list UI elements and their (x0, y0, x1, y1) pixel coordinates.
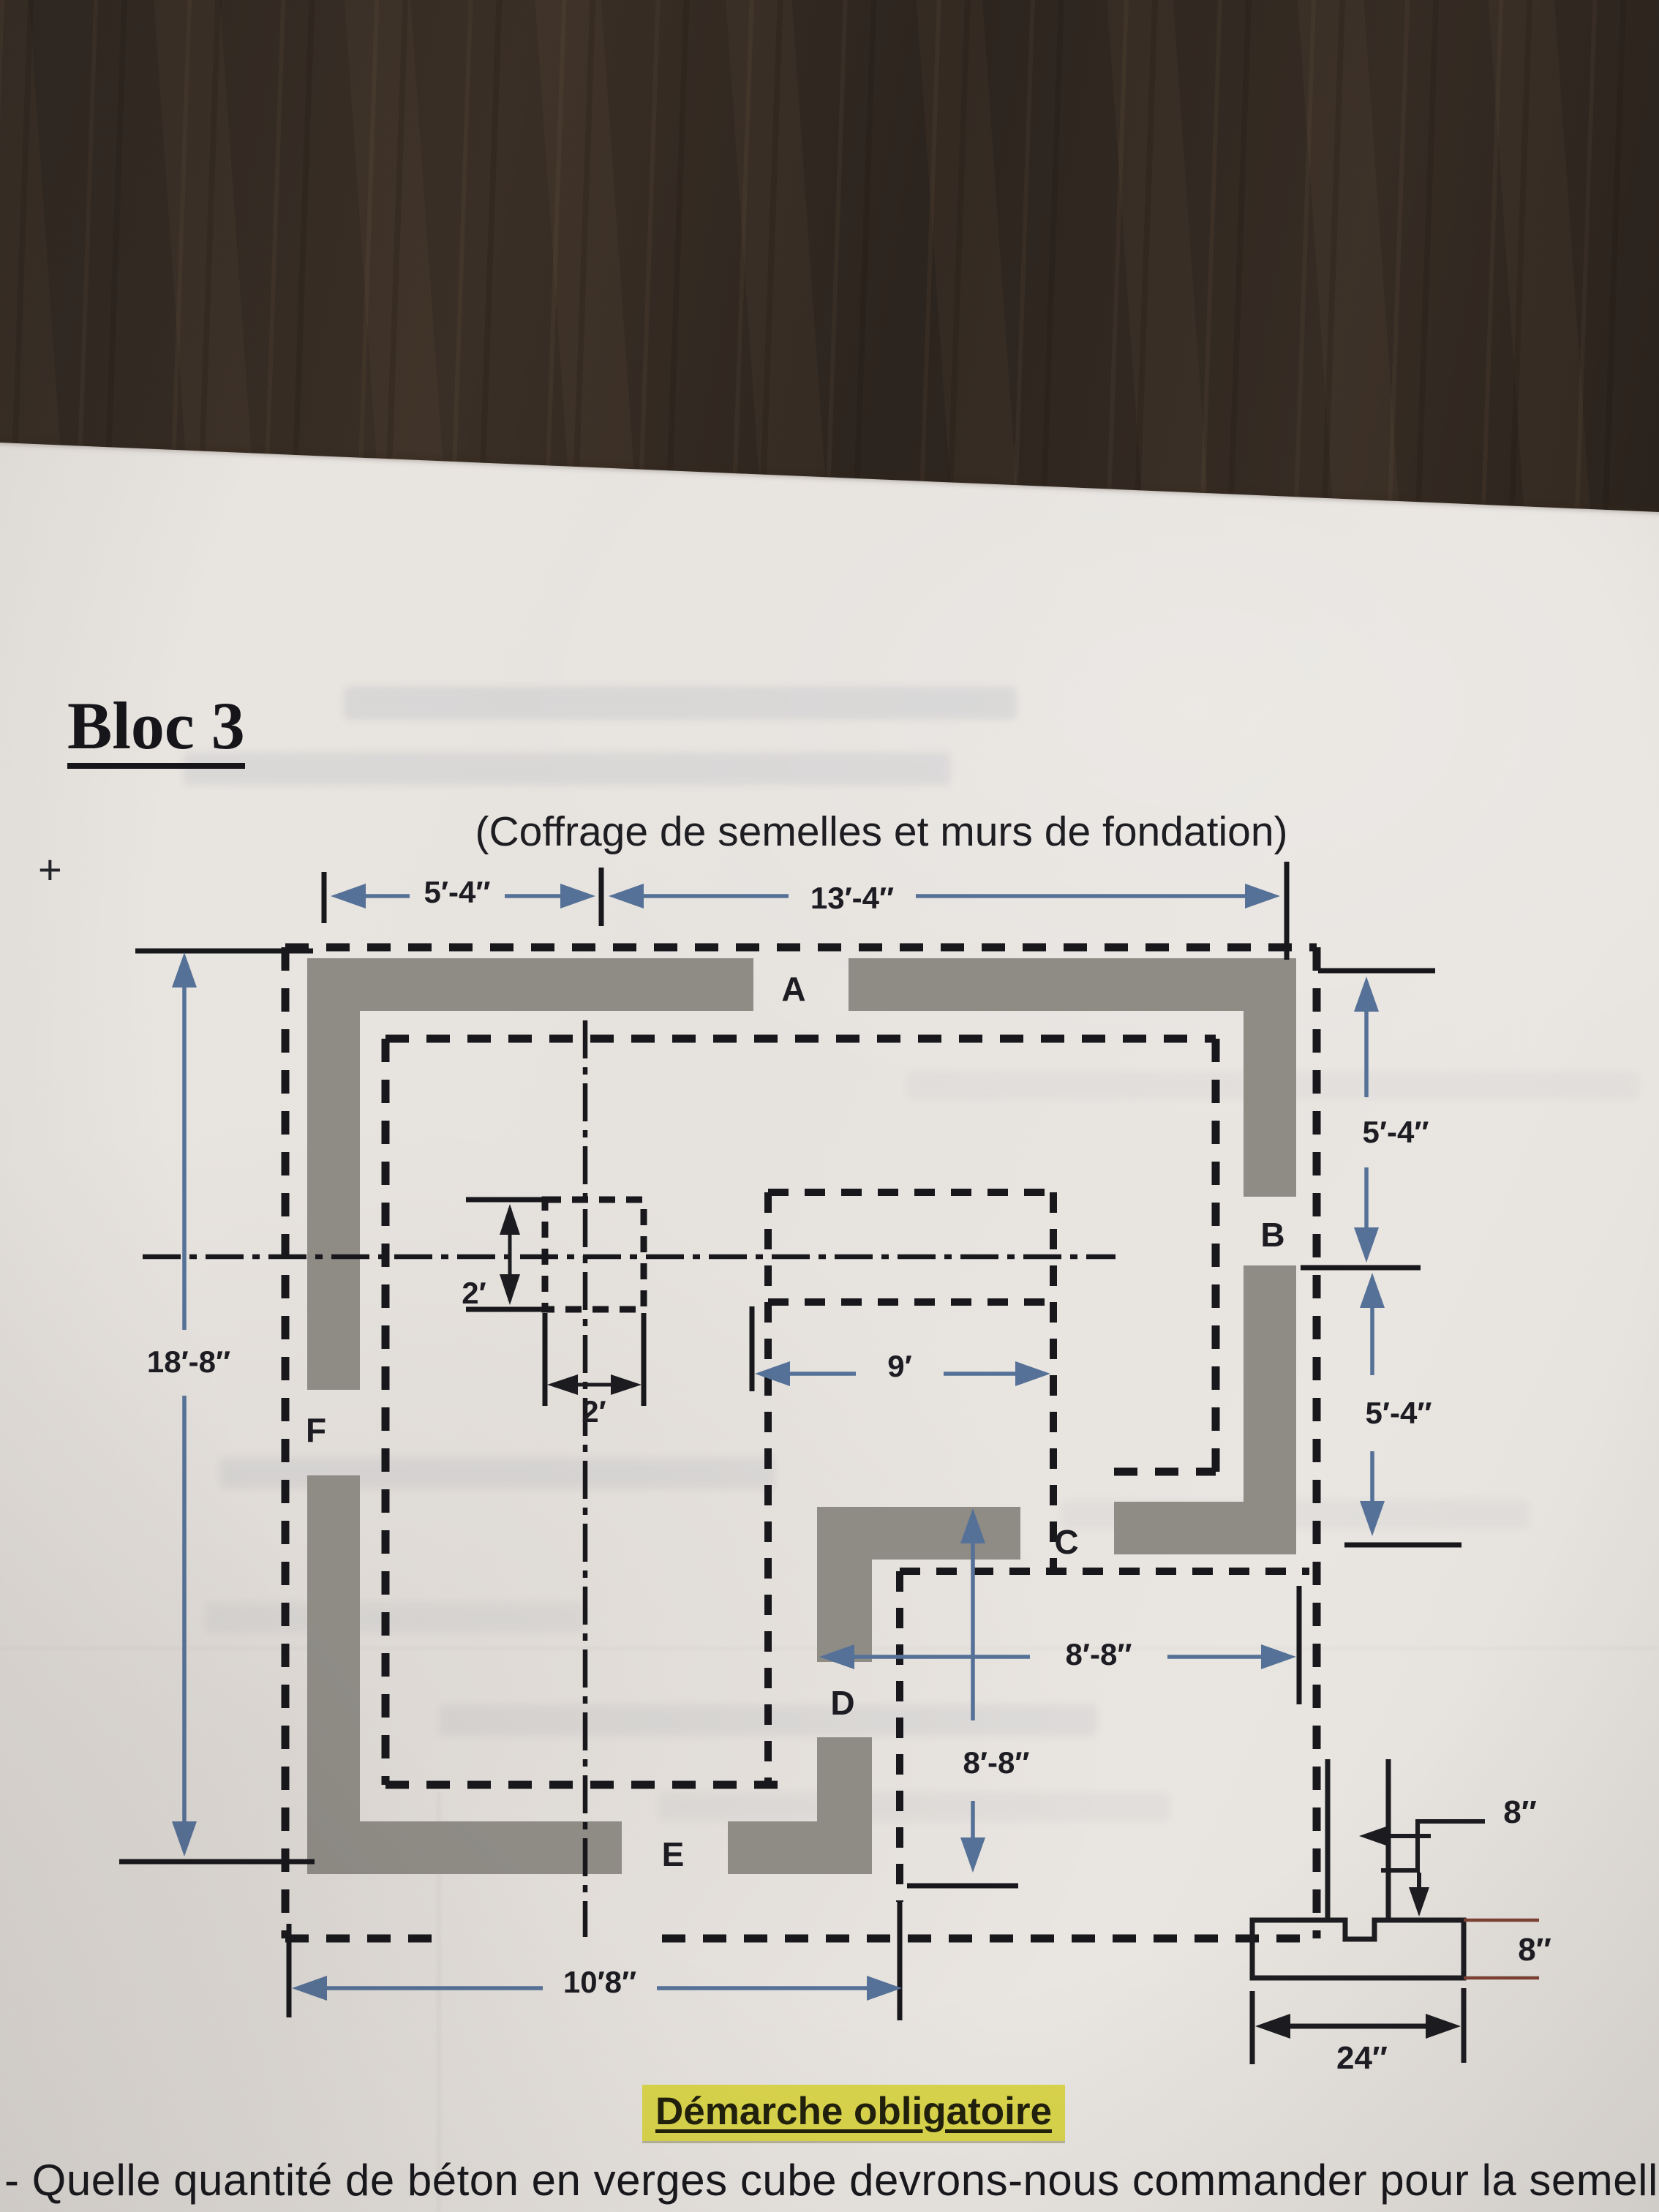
photographed-worksheet: Bloc 3 (Coffrage de semelles et murs de … (0, 0, 1659, 2212)
footing-dashed-outlines (285, 947, 1317, 1938)
dim-right-lower: 5′-4″ (1366, 1396, 1432, 1431)
section-wall-thickness-label: 8″ (1503, 1794, 1537, 1831)
wall-top-right (849, 958, 1296, 1011)
dim-pier-height: 2′ (462, 1276, 486, 1311)
dim-pier-width: 2′ (582, 1394, 606, 1429)
dim-right-upper: 5′-4″ (1363, 1115, 1429, 1150)
opening-label-b: B (1260, 1215, 1284, 1254)
opening-label-d: D (830, 1683, 854, 1723)
wall-right-leg (1114, 1502, 1244, 1554)
opening-label-f: F (306, 1410, 326, 1450)
pier-dimension-arrowheads (500, 1204, 642, 1395)
dim-patio-width: 8′-8″ (1066, 1637, 1132, 1672)
foundation-plan-drawing (0, 0, 1659, 2212)
wall-d-lower (817, 1737, 872, 1821)
wall-top-left (307, 958, 753, 1011)
dim-patio-height: 8′-8″ (963, 1745, 1030, 1780)
dim-top-right: 13′-4″ (810, 881, 894, 916)
section-arrowheads (1255, 1826, 1461, 2039)
dim-interior-width: 9′ (887, 1349, 911, 1384)
foundation-walls (307, 958, 1296, 1874)
wall-left-lower (307, 1475, 360, 1874)
wall-bottom-left (307, 1821, 622, 1874)
dim-top-left: 5′-4″ (424, 875, 491, 910)
opening-label-c: C (1054, 1522, 1078, 1562)
question-text: - Quelle quantité de béton en verges cub… (4, 2155, 1659, 2205)
wall-right-upper (1244, 1011, 1296, 1197)
section-footing-width-label: 24″ (1336, 2040, 1388, 2077)
wall-d-upper (817, 1507, 872, 1662)
section-footing-outline (1252, 1920, 1464, 1978)
mandatory-procedure-banner: Démarche obligatoire (642, 2085, 1065, 2141)
wall-bottom-right (728, 1821, 872, 1874)
dim-left-height: 18′-8″ (147, 1344, 230, 1380)
wall-right-lower (1244, 1265, 1296, 1554)
section-footing-height-label: 8″ (1518, 1932, 1551, 1968)
dim-bottom-width: 10′8″ (563, 1965, 636, 2000)
pier-dimensions (510, 1208, 634, 1385)
opening-label-e: E (662, 1835, 685, 1874)
section-leader-step (1381, 1821, 1485, 1870)
opening-label-a: A (781, 969, 805, 1009)
wall-left-upper (307, 958, 360, 1390)
